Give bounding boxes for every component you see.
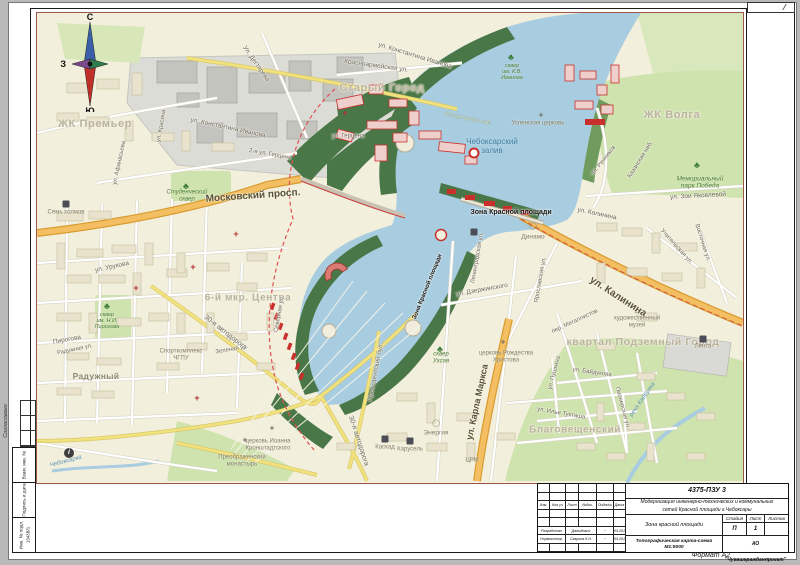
format-label: Формат А2 — [676, 552, 746, 559]
signature-mark: ~ — [597, 535, 614, 544]
side-attribute-cells: Взам. инв. № Подпись и дата Инв. № подл.… — [12, 447, 36, 553]
corner-cell — [747, 2, 795, 13]
signature-role: Разработал — [538, 527, 566, 536]
rev-header: Лист — [566, 501, 579, 510]
title-block-right: 4375-ПЗУ 3 Модернизация инженерно-технич… — [626, 484, 788, 552]
side-cell-label: Инв. № подл. — [18, 521, 23, 550]
drawing-sheet-page: С Ю З В Старый ГородЖК ПремьерЖК Волга6-… — [0, 0, 800, 565]
approved-label: Согласовано — [3, 404, 9, 438]
signature-role: Нормоконтр. — [538, 535, 566, 544]
sheet-label: Лист — [747, 515, 765, 523]
sheets-label: Листов — [765, 515, 788, 523]
topographic-map — [36, 12, 744, 484]
compass-south-label: Ю — [85, 106, 94, 112]
rev-header: Кол.уч — [550, 501, 566, 510]
sheet-value: 1 — [747, 523, 765, 536]
project-line1: Модернизация инженерно-технических и ком… — [641, 499, 774, 505]
fold-line — [746, 8, 747, 551]
signature-date: 04.2017 — [614, 527, 626, 536]
side-cell-label: Подпись и дата — [22, 483, 27, 516]
project-name: Модернизация инженерно-технических и ком… — [626, 498, 788, 515]
stage-label: Стадия — [723, 515, 747, 523]
organization-name: АО "Чувашгражданпроект" — [723, 536, 788, 552]
compass-north-label: С — [87, 12, 94, 22]
approval-margin: Согласовано — [3, 398, 21, 450]
side-cell-inv: Инв. № подл. 1343В/1 — [13, 518, 35, 552]
compass-west-label: З — [60, 59, 66, 69]
sheets-value — [765, 523, 788, 536]
approval-grid — [20, 400, 36, 447]
title-block: Изм. Кол.уч Лист №док. Подпись Дата Разр… — [537, 483, 789, 553]
side-cell-label: Взам. инв. № — [22, 451, 27, 479]
inventory-number: 1343В/1 — [26, 527, 31, 543]
sheet-title: Топографическая карта-схема М1:5000 — [626, 536, 723, 552]
revision-table: Изм. Кол.уч Лист №док. Подпись Дата Разр… — [538, 484, 626, 552]
map-graphics — [37, 13, 743, 483]
compass-rose: С Ю З В — [30, 12, 110, 112]
stage-table: Стадия Лист Листов П 1 — [723, 515, 788, 536]
signature-name: Давыдович — [566, 527, 597, 536]
document-number: 4375-ПЗУ 3 — [626, 484, 788, 499]
rev-header: №док. — [579, 501, 597, 510]
rev-header: Изм. — [538, 501, 550, 510]
side-cell-vzam: Взам. инв. № — [13, 448, 35, 483]
rev-header: Подпись — [597, 501, 614, 510]
side-cell-podpis: Подпись и дата — [13, 483, 35, 518]
stage-value: П — [723, 523, 747, 536]
project-line2: сетей Красной площади г.Чебоксары — [662, 507, 751, 513]
signature-name: Скарина К.Н. — [566, 535, 597, 544]
object-name: Зона красной площади — [626, 515, 723, 536]
signature-date: 04.2017 — [614, 535, 626, 544]
rev-header: Дата — [614, 501, 626, 510]
signature-mark: ~ — [597, 527, 614, 536]
